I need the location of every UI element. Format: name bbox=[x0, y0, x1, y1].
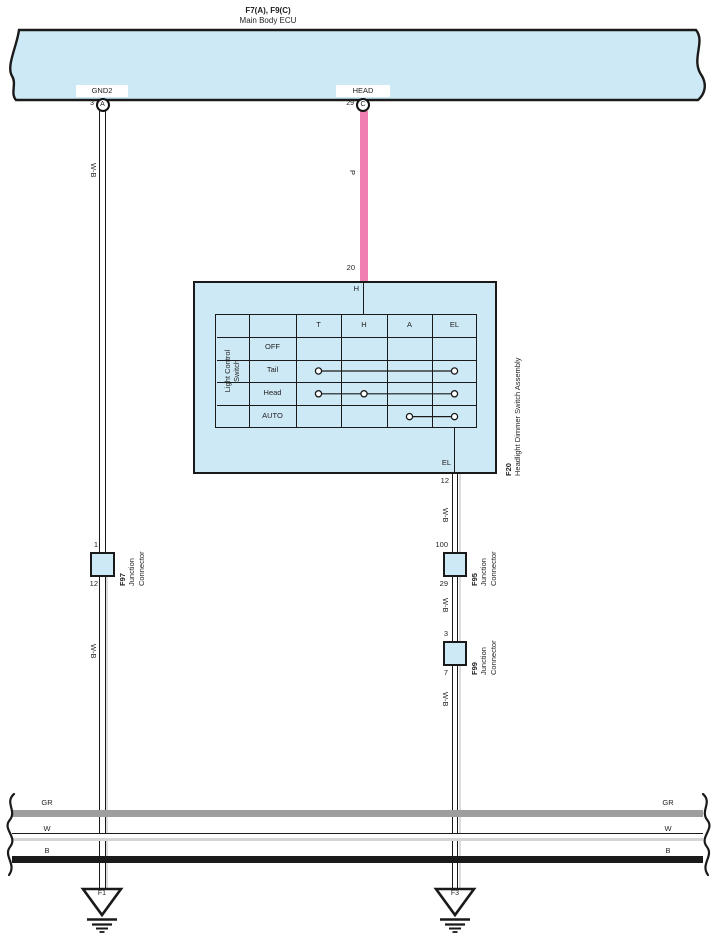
switch-bottom-terminal: EL bbox=[431, 458, 451, 467]
ground-wire-w bbox=[12, 833, 703, 841]
right-wire-shadow bbox=[459, 474, 461, 889]
switch-top-terminal: H bbox=[345, 284, 359, 293]
switch-el-lead bbox=[454, 428, 456, 474]
wire-right-wb bbox=[452, 474, 459, 889]
junction-connector-f99 bbox=[443, 641, 468, 666]
wire-color-label-wb: W-B bbox=[441, 508, 450, 522]
f99-pin-bottom: 7 bbox=[428, 668, 448, 677]
f99-pin-top: 3 bbox=[428, 629, 448, 638]
switch-assembly-label: F20 Headlight Dimmer Switch Assembly bbox=[504, 358, 523, 476]
pin-label-head: HEAD bbox=[336, 85, 390, 98]
ground-wire-b bbox=[12, 856, 703, 864]
torn-edge-right bbox=[697, 792, 715, 884]
wire-left-wb bbox=[99, 111, 106, 889]
f95-pin-bottom: 29 bbox=[428, 579, 448, 588]
f97-label: F97 Junction Connector bbox=[118, 551, 146, 586]
switch-contacts bbox=[215, 314, 477, 428]
ground-ref-f1: F1 bbox=[93, 890, 111, 899]
wire-color-label-wb: W-B bbox=[89, 644, 98, 658]
f97-pin-top: 1 bbox=[78, 540, 98, 549]
bus-label-gr-left: GR bbox=[35, 798, 59, 807]
pin-connector-a: A bbox=[96, 98, 110, 112]
f99-label: F99 Junction Connector bbox=[470, 640, 498, 675]
f95-label: F95 Junction Connector bbox=[470, 551, 498, 586]
ecu-ref: F7(A), F9(C) bbox=[168, 6, 368, 16]
wire-color-label-wb: W-B bbox=[441, 692, 450, 706]
ecu-name: Main Body ECU bbox=[168, 16, 368, 26]
switch-top-pin-number: 20 bbox=[341, 263, 355, 272]
pin-connector-c: C bbox=[356, 98, 370, 112]
head-label-box: HEAD bbox=[336, 85, 390, 98]
bus-label-w-right: W bbox=[656, 824, 680, 833]
pin-label-gnd2: GND2 bbox=[76, 85, 128, 98]
pin-number-head: 29 bbox=[334, 100, 354, 109]
wire-color-label-wb: W-B bbox=[89, 163, 98, 177]
wire-color-label-p: P bbox=[348, 170, 357, 175]
bus-label-b-left: B bbox=[35, 846, 59, 855]
switch-assembly-ref: F20 bbox=[504, 358, 513, 476]
ground-wire-gr bbox=[12, 810, 703, 817]
gnd2-label-box: GND2 bbox=[76, 85, 128, 98]
switch-bottom-pin-number: 12 bbox=[429, 476, 449, 485]
left-wire-shadow bbox=[106, 576, 108, 889]
wire-color-label-wb: W-B bbox=[441, 598, 450, 612]
f97-pin-bottom: 12 bbox=[78, 579, 98, 588]
junction-connector-f95 bbox=[443, 552, 468, 577]
wire-head-pink bbox=[360, 111, 368, 281]
ground-ref-f3: F3 bbox=[446, 890, 464, 899]
bus-label-w-left: W bbox=[35, 824, 59, 833]
wiring-diagram: F7(A), F9(C) Main Body ECU GND2 HEAD 3 A… bbox=[0, 0, 715, 940]
pin-number-gnd2: 3 bbox=[74, 100, 94, 109]
switch-assembly-name: Headlight Dimmer Switch Assembly bbox=[513, 358, 522, 476]
junction-connector-f97 bbox=[90, 552, 115, 577]
bus-label-gr-right: GR bbox=[656, 798, 680, 807]
bus-label-b-right: B bbox=[656, 846, 680, 855]
f95-pin-top: 100 bbox=[420, 540, 448, 549]
switch-top-pin-lead bbox=[363, 281, 365, 314]
torn-edge-left bbox=[2, 792, 20, 884]
